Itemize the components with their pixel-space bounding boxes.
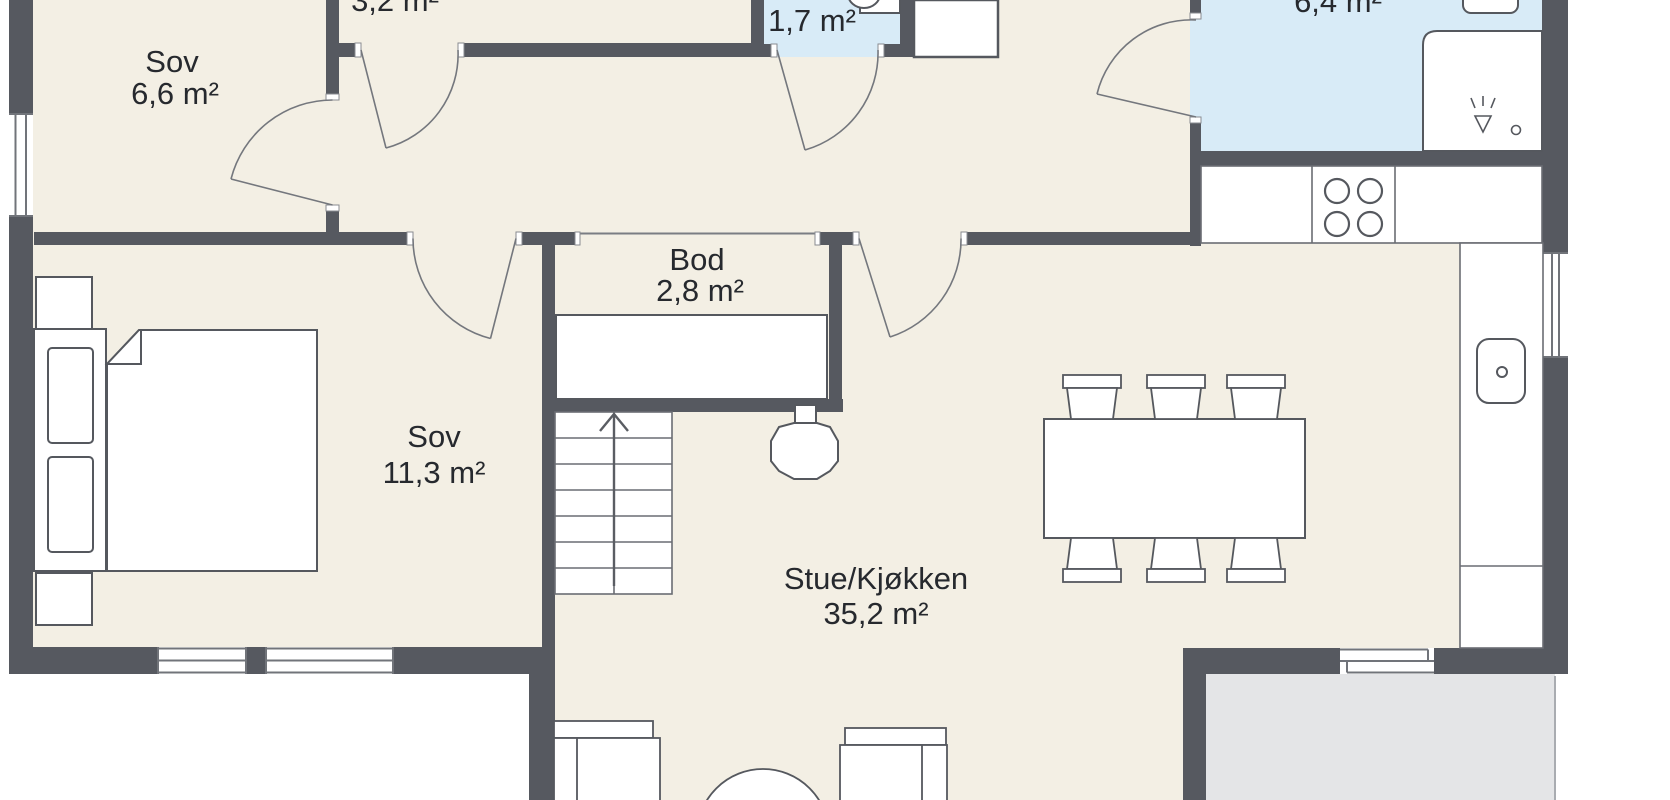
svg-text:6,6 m²: 6,6 m² xyxy=(131,76,219,111)
svg-text:Stue/Kjøkken: Stue/Kjøkken xyxy=(784,561,968,596)
svg-text:6,4 m²: 6,4 m² xyxy=(1294,0,1382,19)
svg-text:3,2 m²: 3,2 m² xyxy=(351,0,439,18)
svg-text:1,7 m²: 1,7 m² xyxy=(768,3,856,38)
svg-text:Bod: Bod xyxy=(669,242,724,277)
svg-text:Sov: Sov xyxy=(145,44,199,79)
svg-text:11,3 m²: 11,3 m² xyxy=(383,455,486,490)
svg-text:35,2 m²: 35,2 m² xyxy=(823,596,928,631)
svg-text:2,8 m²: 2,8 m² xyxy=(656,273,744,308)
svg-text:Sov: Sov xyxy=(407,419,461,454)
